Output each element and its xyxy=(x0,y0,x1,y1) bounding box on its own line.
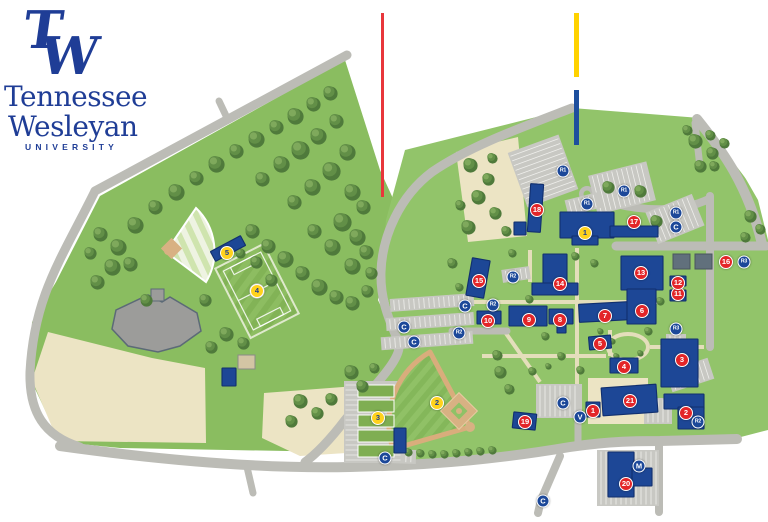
parking-marker-c-16[interactable]: C xyxy=(537,495,550,508)
parking-marker-v-14[interactable]: V xyxy=(574,411,587,424)
building-marker-12[interactable]: 12 xyxy=(671,276,685,290)
building-marker-1[interactable]: 1 xyxy=(586,404,600,418)
building-marker-15[interactable]: 15 xyxy=(472,274,486,288)
athletic-marker-3[interactable]: 3 xyxy=(371,411,385,425)
parking-marker-r2-7[interactable]: R2 xyxy=(487,299,500,312)
athletic-marker-5[interactable]: 5 xyxy=(220,246,234,260)
building-marker-18[interactable]: 18 xyxy=(530,203,544,217)
parking-marker-r1-1[interactable]: R1 xyxy=(618,185,631,198)
parking-marker-c-9[interactable]: C xyxy=(408,336,421,349)
parking-marker-c-15[interactable]: C xyxy=(379,452,392,465)
building-marker-20[interactable]: 20 xyxy=(619,477,633,491)
building-marker-8[interactable]: 8 xyxy=(553,313,567,327)
parking-marker-c-4[interactable]: C xyxy=(670,221,683,234)
building-marker-5[interactable]: 5 xyxy=(593,337,607,351)
building-marker-17[interactable]: 17 xyxy=(627,215,641,229)
parking-marker-r1-0[interactable]: R1 xyxy=(557,165,570,178)
building-marker-4[interactable]: 4 xyxy=(617,360,631,374)
parking-marker-r1-2[interactable]: R1 xyxy=(581,198,594,211)
building-marker-3[interactable]: 3 xyxy=(675,353,689,367)
athletic-marker-4[interactable]: 4 xyxy=(250,284,264,298)
parking-marker-r3-12[interactable]: R3 xyxy=(670,323,683,336)
athletic-marker-1[interactable]: 1 xyxy=(578,226,592,240)
building-marker-9[interactable]: 9 xyxy=(522,313,536,327)
parking-marker-r2-18[interactable]: R2 xyxy=(692,416,705,429)
parking-marker-c-6[interactable]: C xyxy=(459,300,472,313)
parking-marker-r2-10[interactable]: R2 xyxy=(453,327,466,340)
building-marker-21[interactable]: 21 xyxy=(623,394,637,408)
parking-marker-m-17[interactable]: M xyxy=(633,460,646,473)
parking-marker-c-13[interactable]: C xyxy=(557,397,570,410)
building-marker-14[interactable]: 14 xyxy=(553,277,567,291)
building-marker-6[interactable]: 6 xyxy=(635,304,649,318)
blue-callout-line xyxy=(574,90,579,145)
marker-layer: 12345678910111213141516171819202112345R1… xyxy=(0,0,768,522)
building-marker-19[interactable]: 19 xyxy=(518,415,532,429)
yellow-callout-line xyxy=(574,13,579,77)
parking-marker-r3-11[interactable]: R3 xyxy=(738,256,751,269)
campus-map-page: T W Tennessee Wesleyan UNIVERSITY 123456… xyxy=(0,0,768,522)
building-marker-7[interactable]: 7 xyxy=(598,309,612,323)
building-marker-16[interactable]: 16 xyxy=(719,255,733,269)
parking-marker-r2-5[interactable]: R2 xyxy=(507,271,520,284)
athletic-marker-2[interactable]: 2 xyxy=(430,396,444,410)
building-marker-13[interactable]: 13 xyxy=(634,266,648,280)
red-callout-line xyxy=(381,13,384,197)
parking-marker-c-8[interactable]: C xyxy=(398,321,411,334)
building-marker-10[interactable]: 10 xyxy=(481,314,495,328)
building-marker-2[interactable]: 2 xyxy=(679,406,693,420)
parking-marker-r1-3[interactable]: R1 xyxy=(670,207,683,220)
